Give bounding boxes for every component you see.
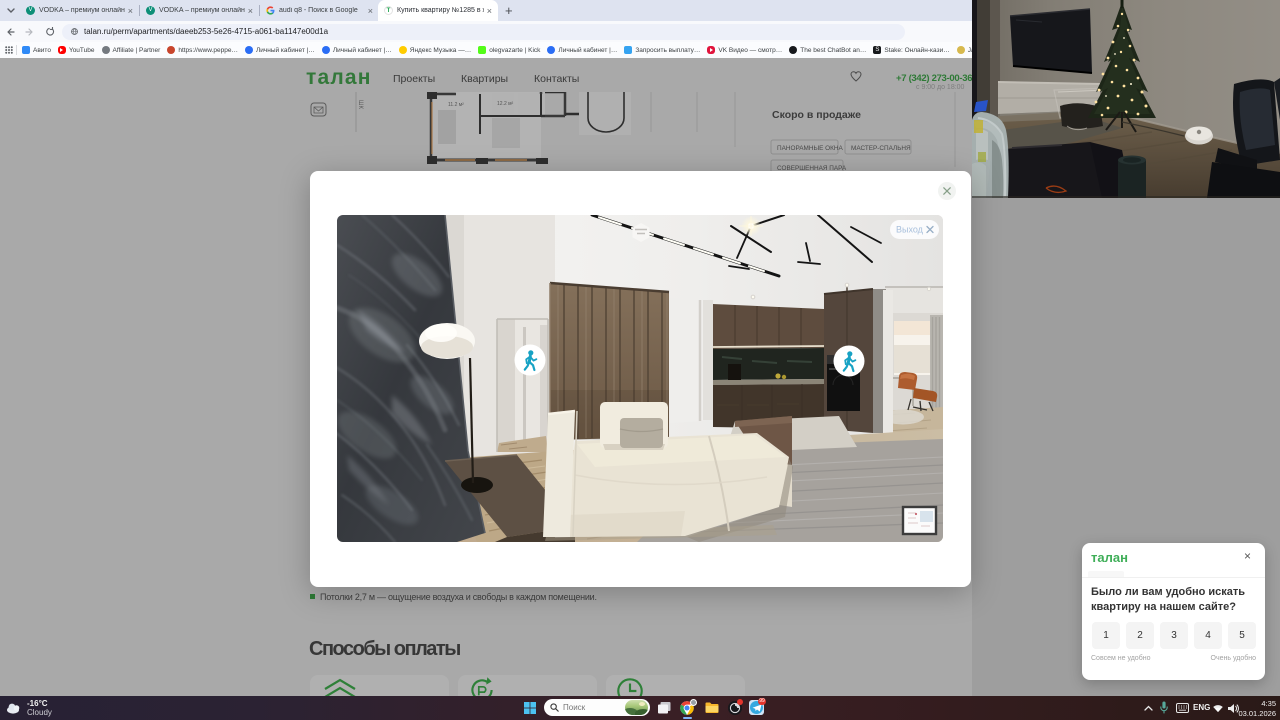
svg-text:Выход: Выход	[896, 225, 924, 235]
svg-text:МАСТЕР-СПАЛЬНЯ: МАСТЕР-СПАЛЬНЯ	[851, 145, 911, 152]
svg-text:Скоро в продаже: Скоро в продаже	[772, 109, 861, 121]
svg-text:ПАНОРАМНЫЕ ОКНА: ПАНОРАМНЫЕ ОКНА	[777, 145, 843, 152]
svg-text:ШК: ШК	[357, 100, 363, 109]
svg-text:12.2 м²: 12.2 м²	[497, 101, 514, 107]
svg-text:11.2 м²: 11.2 м²	[448, 102, 464, 108]
